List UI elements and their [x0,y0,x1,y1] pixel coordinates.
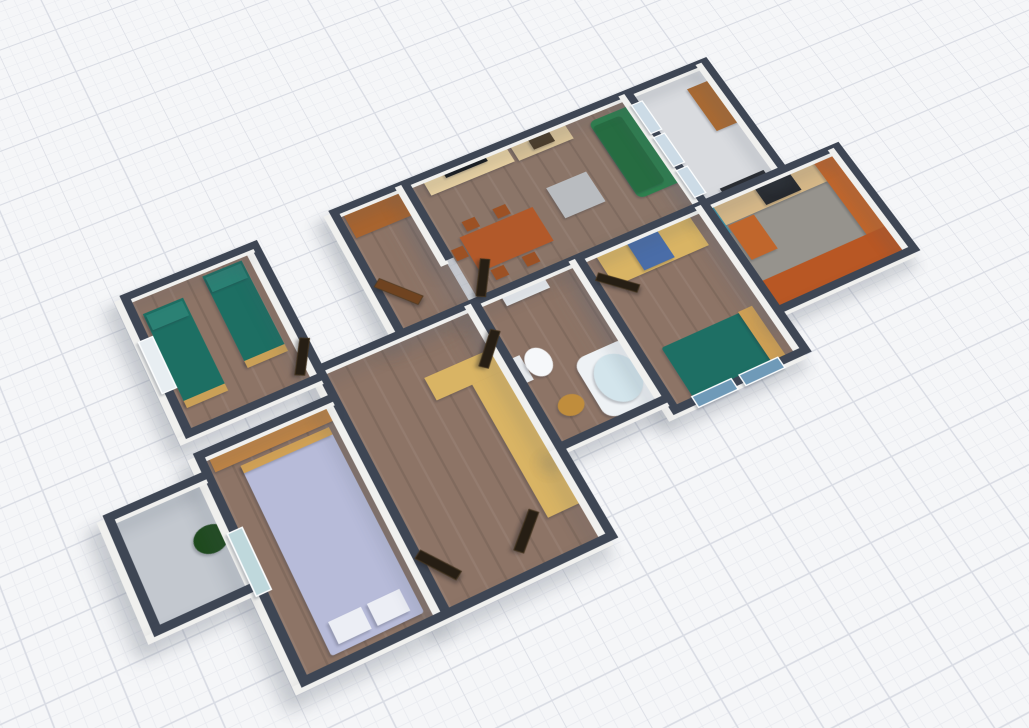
grid-ground [0,0,1029,728]
plan [19,25,1002,728]
floor-plan-canvas[interactable] [0,0,1029,728]
